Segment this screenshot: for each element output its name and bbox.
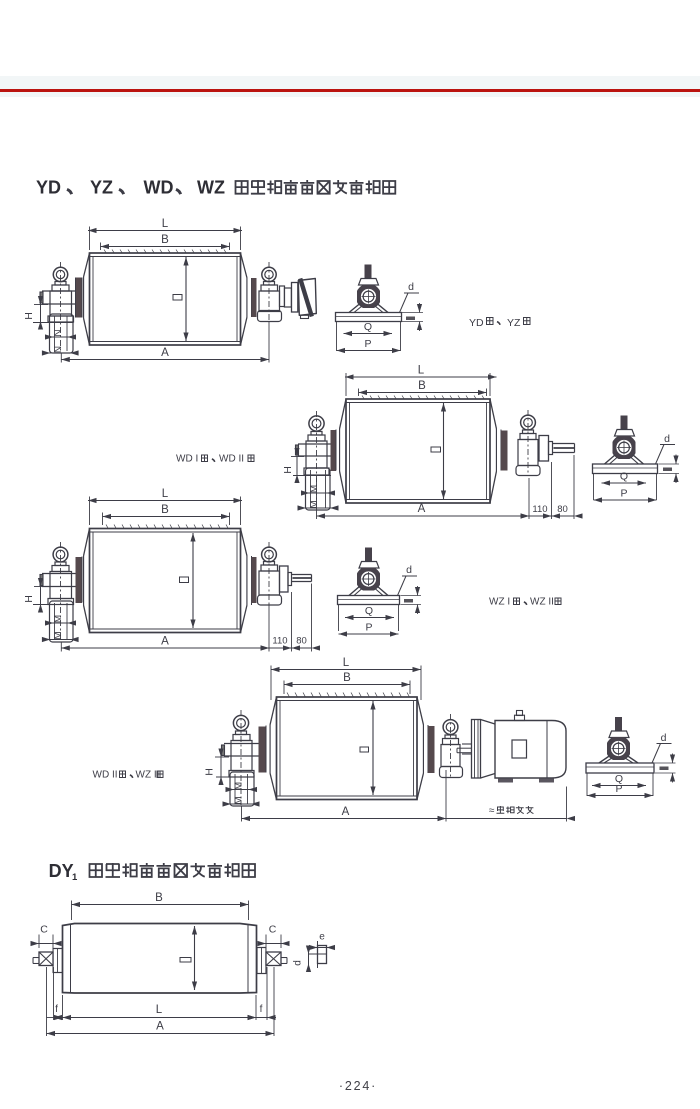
svg-text:C: C: [40, 924, 48, 936]
svg-text:M: M: [234, 782, 245, 790]
svg-text:WD: WD: [144, 178, 174, 198]
svg-text:d: d: [408, 281, 414, 293]
svg-text:L: L: [418, 365, 425, 377]
svg-text:1: 1: [72, 872, 78, 883]
svg-text:H: H: [282, 466, 294, 474]
svg-text:Q: Q: [620, 471, 628, 483]
svg-text:DY: DY: [49, 861, 74, 881]
svg-text:f: f: [260, 1004, 263, 1015]
svg-text:L: L: [343, 657, 350, 669]
svg-text:L: L: [162, 488, 169, 500]
svg-text:d: d: [661, 732, 667, 744]
svg-text:H: H: [23, 312, 35, 320]
svg-text:M: M: [53, 631, 64, 639]
svg-text:Q: Q: [365, 605, 373, 617]
svg-text:WD II: WD II: [219, 454, 244, 465]
svg-text:d: d: [293, 960, 304, 966]
svg-text:P: P: [364, 338, 371, 350]
svg-text:M: M: [309, 485, 320, 493]
svg-text:P: P: [620, 488, 627, 500]
svg-text:80: 80: [557, 504, 568, 515]
svg-text:WD I: WD I: [176, 454, 198, 465]
svg-text:f: f: [55, 1004, 58, 1015]
svg-text:A: A: [161, 347, 169, 359]
svg-text:M: M: [234, 796, 245, 804]
svg-text:B: B: [161, 234, 169, 246]
svg-text:80: 80: [296, 636, 307, 647]
svg-text:d: d: [406, 564, 412, 576]
svg-text:B: B: [418, 380, 426, 392]
svg-text:YD: YD: [469, 317, 484, 329]
svg-text:110: 110: [532, 504, 547, 515]
svg-text:WZ I: WZ I: [489, 597, 510, 608]
svg-text:C: C: [269, 924, 277, 936]
svg-text:A: A: [156, 1021, 164, 1033]
svg-text:WZ II: WZ II: [136, 770, 160, 781]
svg-text:N: N: [53, 346, 64, 353]
svg-text:YZ: YZ: [507, 317, 521, 329]
svg-text:B: B: [155, 892, 163, 904]
svg-text:L: L: [156, 1004, 163, 1016]
svg-text:B: B: [161, 504, 169, 516]
svg-text:WZ: WZ: [197, 178, 225, 198]
svg-text:P: P: [615, 783, 622, 795]
svg-text:P: P: [365, 622, 372, 634]
svg-text:H: H: [204, 768, 216, 776]
svg-text:≈: ≈: [489, 806, 495, 817]
svg-text:M: M: [309, 500, 320, 508]
svg-text:Q: Q: [364, 321, 372, 333]
svg-text:e: e: [319, 932, 325, 943]
svg-text:YZ: YZ: [90, 178, 113, 198]
svg-text:N: N: [53, 329, 64, 336]
svg-text:WZ II: WZ II: [530, 597, 554, 608]
svg-text:WD II: WD II: [93, 770, 118, 781]
svg-text:B: B: [343, 672, 351, 684]
svg-text:YD: YD: [36, 178, 61, 198]
svg-text:H: H: [23, 595, 35, 603]
svg-text:·224·: ·224·: [339, 1079, 377, 1093]
svg-text:M: M: [53, 615, 64, 623]
svg-text:A: A: [342, 806, 350, 818]
svg-text:A: A: [418, 503, 426, 515]
svg-text:110: 110: [272, 636, 287, 647]
svg-text:A: A: [161, 636, 169, 648]
svg-text:L: L: [162, 218, 169, 230]
svg-text:d: d: [664, 433, 670, 445]
